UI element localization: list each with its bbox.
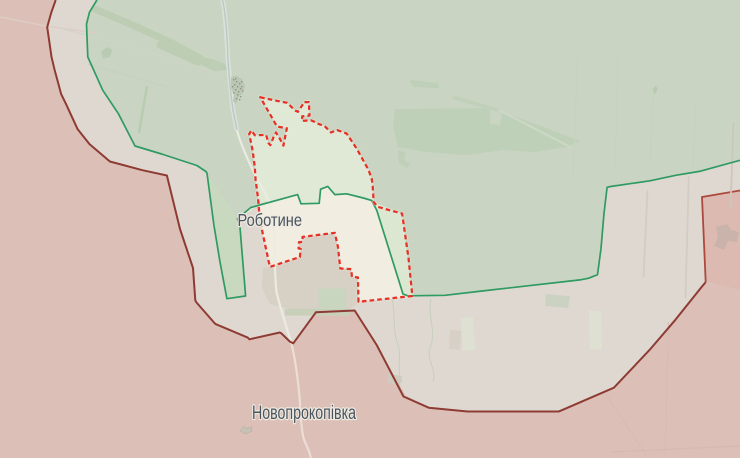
svg-text:Новопрокопівка: Новопрокопівка <box>252 403 356 424</box>
svg-text:Роботине: Роботине <box>238 210 303 230</box>
